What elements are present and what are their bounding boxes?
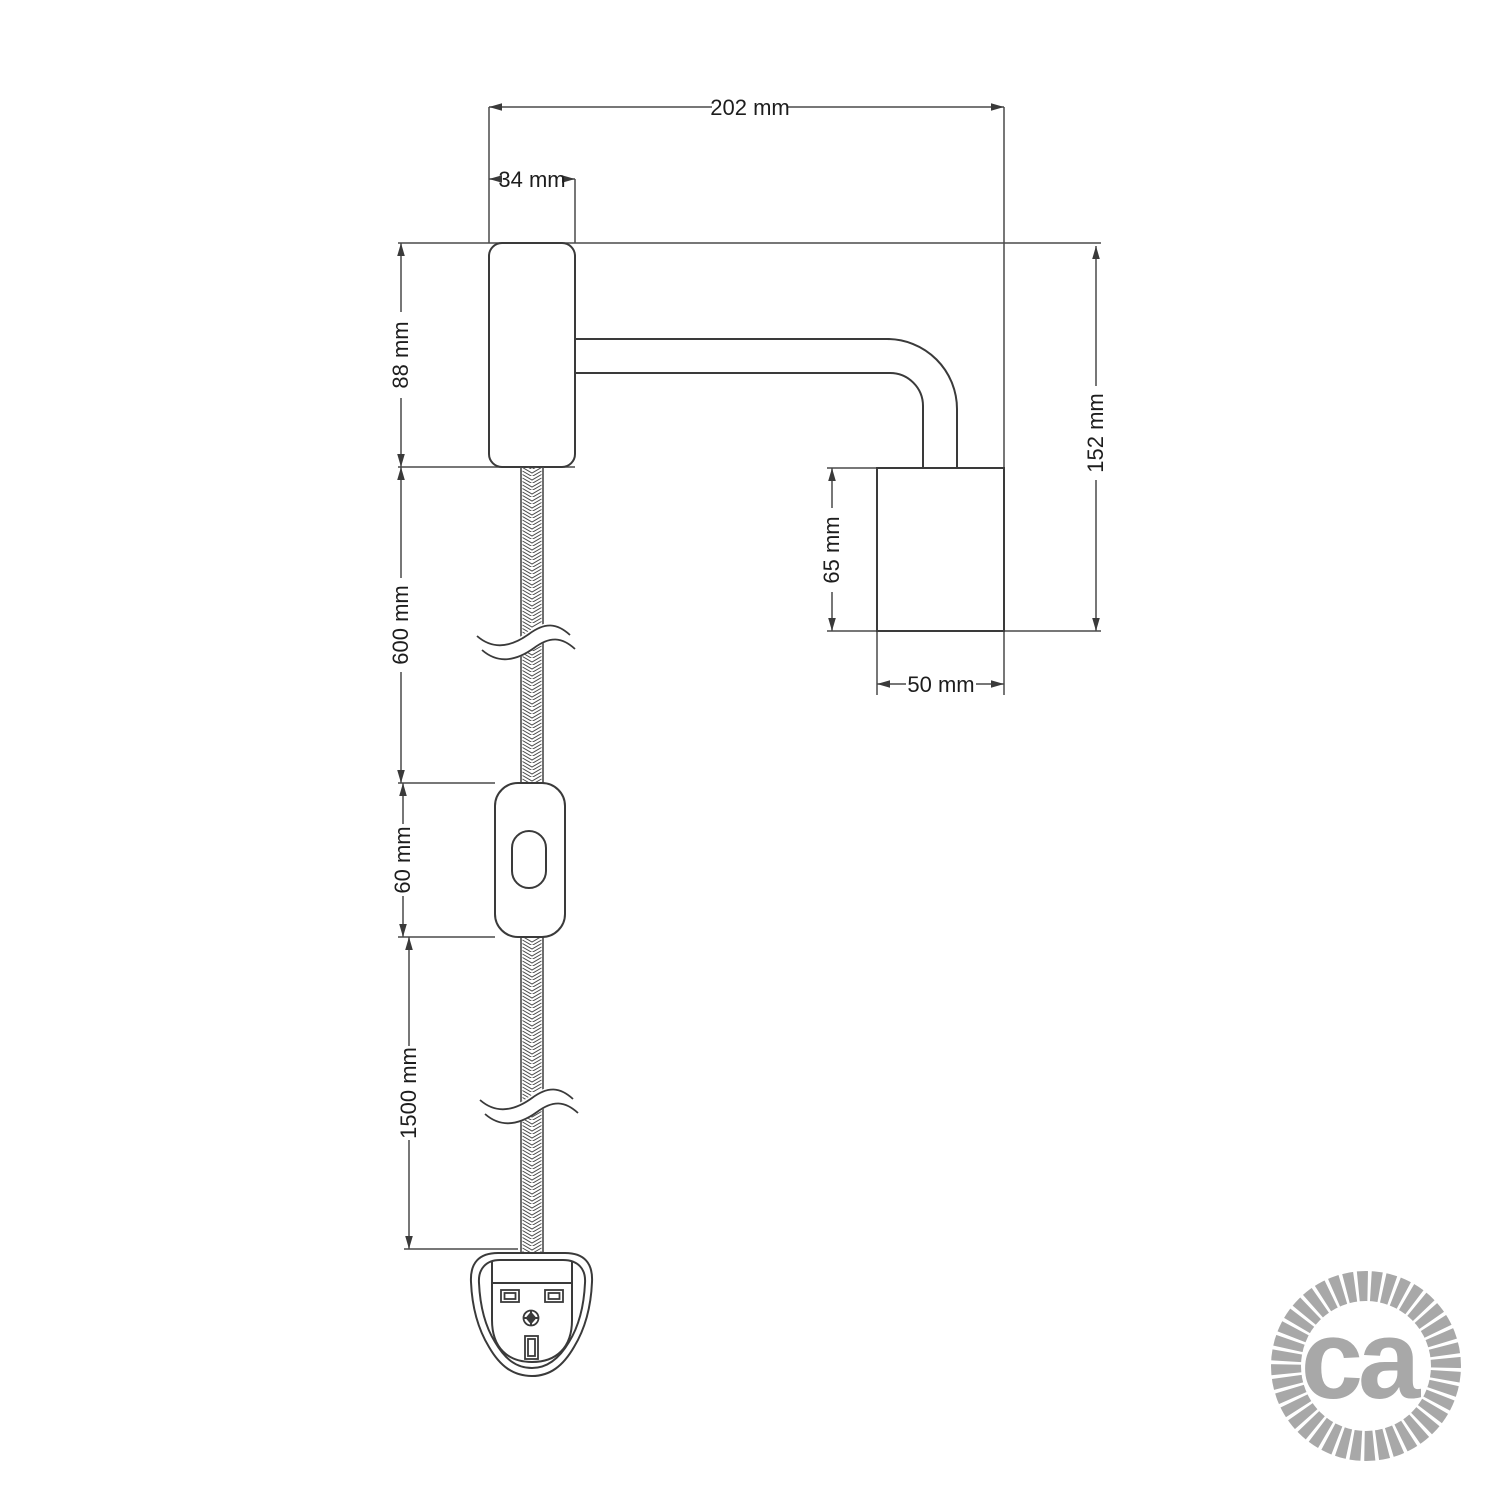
dim-label-total-width: 202 mm: [710, 95, 789, 120]
logo-text: ca: [1301, 1297, 1421, 1422]
lamp-arm-tube: [575, 339, 957, 468]
uk-plug: [471, 1253, 592, 1376]
technical-drawing-canvas: 202 mm 34 mm 88 mm 600 mm 60 mm 1500 mm …: [0, 0, 1500, 1500]
dimension-total-height: 152 mm: [1083, 246, 1108, 631]
dim-label-switch-length: 60 mm: [390, 826, 415, 893]
dimension-total-width: 202 mm: [489, 95, 1004, 120]
dimension-wall-base-height: 88 mm: [388, 243, 413, 467]
dim-label-cable-lower: 1500 mm: [396, 1047, 421, 1139]
dim-label-cable-upper: 600 mm: [388, 585, 413, 664]
braided-cable-upper: [521, 467, 543, 783]
dimension-cable-lower: 1500 mm: [396, 937, 421, 1249]
dimension-wall-base-width: 34 mm: [489, 167, 575, 192]
dimension-switch-length: 60 mm: [390, 783, 415, 937]
dim-label-spotlight-width: 50 mm: [907, 672, 974, 697]
plug-screw: [524, 1311, 539, 1326]
dimension-cable-upper: 600 mm: [388, 467, 413, 783]
dimension-spotlight-width: 50 mm: [877, 672, 1004, 697]
dim-label-wall-base-height: 88 mm: [388, 321, 413, 388]
dim-label-total-height: 152 mm: [1083, 393, 1108, 472]
spotlight-holder: [877, 468, 1004, 631]
wall-mount-box: [489, 243, 575, 467]
dimension-spotlight-height: 65 mm: [819, 468, 844, 631]
dim-label-spotlight-height: 65 mm: [819, 516, 844, 583]
brand-logo: ca: [1273, 1273, 1458, 1458]
dim-label-wall-base-width: 34 mm: [498, 167, 565, 192]
inline-switch: [495, 783, 565, 937]
